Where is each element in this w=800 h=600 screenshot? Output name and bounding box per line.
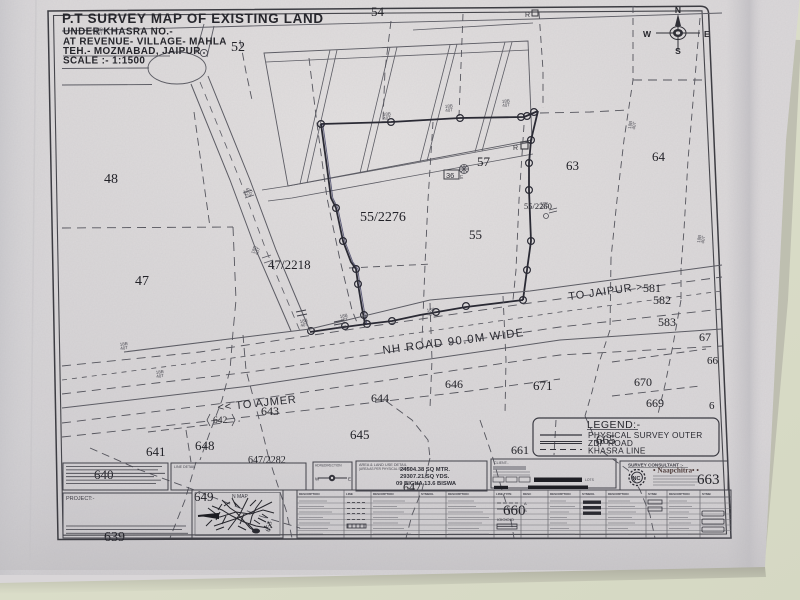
svg-text:DESCRIPTION: DESCRIPTION [373, 492, 394, 496]
svg-text:670: 670 [634, 375, 652, 389]
svg-text:644: 644 [371, 391, 389, 405]
svg-text:18B40T: 18B40T [299, 318, 308, 328]
svg-text:LINE: LINE [346, 492, 353, 496]
svg-text:54: 54 [371, 4, 385, 19]
svg-text:669: 669 [646, 396, 664, 410]
svg-text:SYMBOL: SYMBOL [582, 492, 595, 496]
svg-text:642: 642 [213, 416, 228, 426]
svg-text:DESCRIPTION: DESCRIPTION [448, 492, 469, 496]
svg-text:KHASRA LINE: KHASRA LINE [588, 446, 646, 456]
svg-text:DESCRIPTION: DESCRIPTION [608, 492, 629, 496]
svg-text:DESCRIPTION: DESCRIPTION [299, 492, 320, 496]
svg-text:52: 52 [231, 40, 245, 55]
svg-text:66: 66 [707, 355, 719, 367]
svg-text:583: 583 [658, 315, 676, 329]
svg-text:DESCRIPTION: DESCRIPTION [669, 492, 690, 496]
svg-text:18B40T: 18B40T [119, 341, 128, 351]
svg-text:DESC: DESC [523, 492, 532, 496]
svg-text:661: 661 [511, 443, 529, 457]
svg-text:663: 663 [697, 472, 720, 488]
svg-text:DESCRIPTION: DESCRIPTION [550, 492, 571, 496]
svg-text:48: 48 [104, 172, 118, 187]
svg-text:E: E [704, 29, 710, 39]
svg-text:18B40T: 18B40T [95, 27, 103, 36]
svg-text:NC: NC [633, 476, 641, 482]
svg-text:582: 582 [653, 293, 671, 307]
svg-text:LOTS: LOTS [585, 478, 595, 482]
svg-text:18B40T: 18B40T [502, 98, 511, 108]
svg-text:18B40T: 18B40T [426, 307, 435, 317]
svg-text:HDR&DIRECTION: HDR&DIRECTION [315, 464, 342, 468]
svg-text:18B40T: 18B40T [155, 369, 164, 379]
svg-text:55: 55 [469, 227, 482, 242]
svg-text:LINE DETAIL: LINE DETAIL [174, 465, 195, 469]
svg-text:18B40T: 18B40T [339, 313, 348, 323]
svg-text:648: 648 [195, 438, 215, 453]
svg-text:SYMB: SYMB [702, 492, 712, 496]
svg-text:N: N [675, 5, 681, 15]
svg-text:SYMBOL: SYMBOL [421, 492, 434, 496]
svg-text:671: 671 [533, 378, 553, 393]
svg-text:R: R [525, 12, 530, 19]
svg-text:649: 649 [194, 489, 214, 504]
svg-text:S: S [675, 46, 681, 56]
svg-text:P.T SURVEY MAP OF EXISTING LAN: P.T SURVEY MAP OF EXISTING LAND [62, 11, 324, 26]
svg-text:B: B [524, 508, 527, 513]
svg-text:IOIOIOIO: IOIOIOIO [497, 517, 514, 522]
svg-text:55/2276: 55/2276 [360, 210, 406, 225]
svg-text:645: 645 [350, 427, 370, 442]
svg-text:SYMB: SYMB [648, 492, 658, 496]
svg-text:W: W [643, 29, 652, 39]
svg-text:641: 641 [146, 444, 166, 459]
svg-text:E: E [348, 477, 351, 482]
svg-text:47: 47 [135, 274, 149, 289]
svg-text:29307.21 SQ YDS.: 29307.21 SQ YDS. [400, 474, 450, 480]
svg-text:CLIENT:-: CLIENT:- [494, 461, 509, 465]
svg-text:• Naapchitra• •: • Naapchitra• • [653, 467, 699, 475]
svg-text:N MAP: N MAP [232, 494, 249, 500]
svg-text:63: 63 [566, 158, 579, 173]
svg-text:6: 6 [709, 400, 715, 412]
svg-text:646: 646 [445, 377, 463, 391]
svg-text:57: 57 [477, 154, 491, 169]
svg-text:64: 64 [652, 149, 666, 164]
svg-text:PROJECT:-: PROJECT:- [66, 496, 95, 502]
svg-text:18B40T: 18B40T [540, 201, 548, 210]
svg-text:SCALE :- 1:1500: SCALE :- 1:1500 [63, 56, 145, 67]
svg-text:A: A [524, 501, 527, 506]
svg-text:18B40T: 18B40T [445, 103, 454, 113]
svg-text:18B40T: 18B40T [383, 111, 392, 121]
svg-text:R: R [513, 145, 518, 152]
svg-text:09 BIGHA 13.6 BISWA: 09 BIGHA 13.6 BISWA [396, 481, 457, 487]
svg-text:67: 67 [699, 330, 711, 344]
svg-text:36: 36 [446, 171, 454, 180]
svg-text:24504.38 SQ MTR.: 24504.38 SQ MTR. [400, 467, 450, 473]
svg-text:647/2282: 647/2282 [248, 455, 286, 466]
svg-text:47/2218: 47/2218 [268, 257, 311, 272]
svg-text:LINE TYPE: LINE TYPE [496, 492, 512, 496]
